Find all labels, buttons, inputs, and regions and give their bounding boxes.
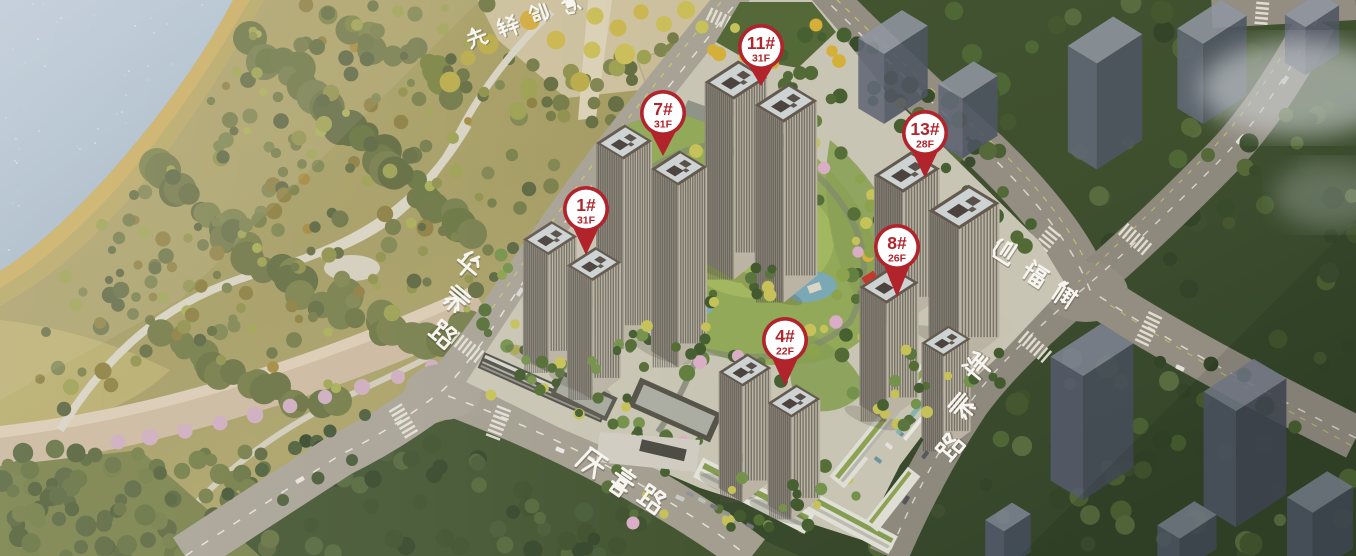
svg-text:11#: 11# [747, 33, 775, 53]
svg-text:31F: 31F [752, 53, 771, 65]
svg-text:7#: 7# [653, 99, 673, 119]
svg-text:1#: 1# [576, 195, 596, 215]
svg-text:13#: 13# [910, 119, 939, 139]
svg-text:22F: 22F [776, 346, 795, 358]
svg-text:8#: 8# [887, 233, 907, 253]
svg-text:31F: 31F [654, 119, 673, 131]
svg-text:26F: 26F [888, 253, 907, 265]
svg-text:31F: 31F [577, 215, 596, 227]
svg-text:4#: 4# [775, 326, 795, 346]
svg-text:28F: 28F [916, 139, 935, 151]
